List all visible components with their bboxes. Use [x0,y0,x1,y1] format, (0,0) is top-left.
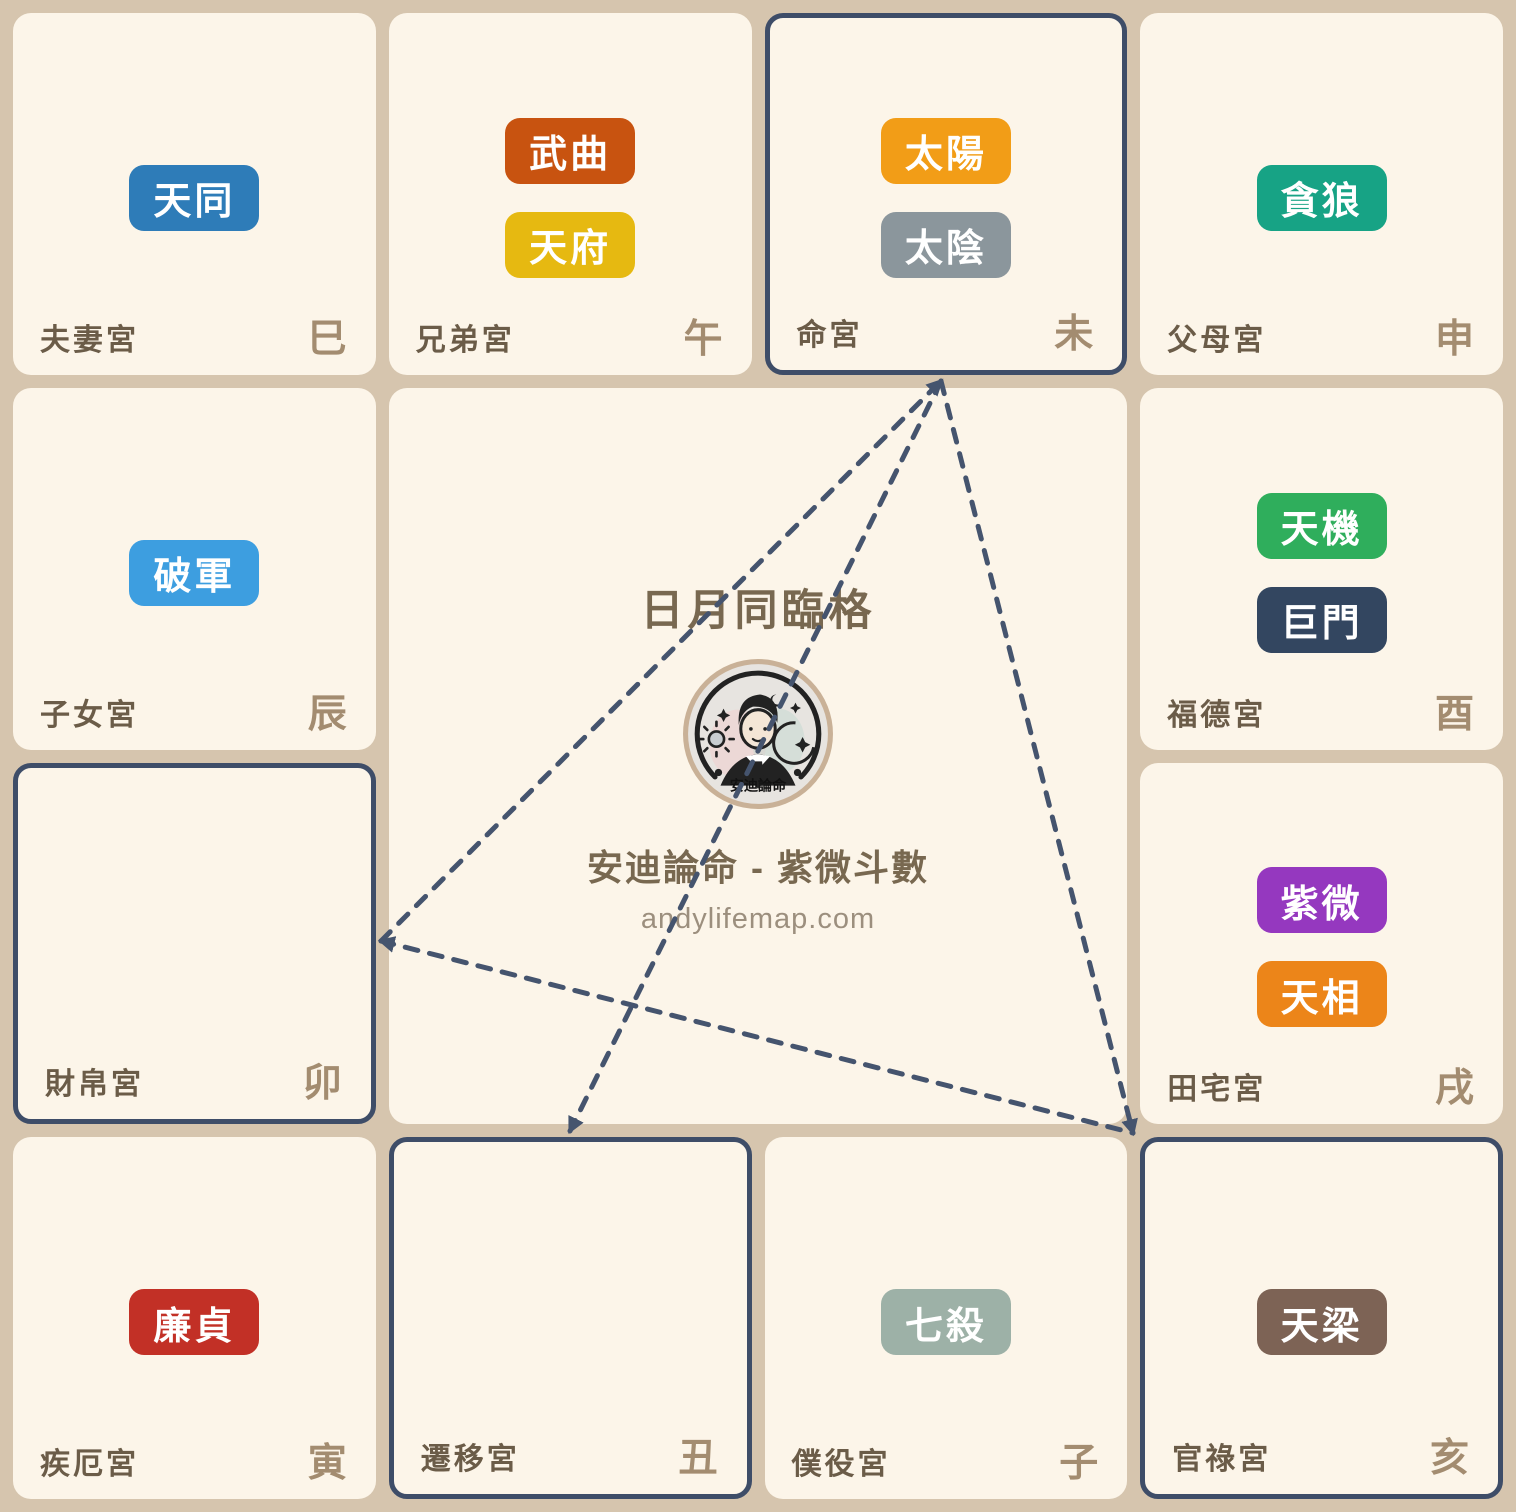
logo-text: 安迪論命 [730,778,788,795]
palace-cell-qianyi: 遷移宮 丑 [389,1137,752,1499]
star-badge: 紫微 [1257,867,1387,933]
palace-cell-xiongdi: 武曲天府 兄弟宮 午 [389,13,752,375]
branch-label: 丑 [678,1439,717,1478]
palace-cell-jie: 廉貞 疾厄宮 寅 [13,1137,376,1499]
palace-meta: 夫妻宮 巳 [40,315,347,359]
branch-label: 酉 [1435,695,1474,734]
chart-center-panel: 日月同臨格 [389,388,1128,1125]
sun-icon [699,722,733,756]
star-badge: 天同 [129,165,259,231]
branch-label: 寅 [308,1444,347,1483]
star-badge: 太陰 [881,212,1011,278]
branch-label: 午 [683,320,722,359]
branch-label: 巳 [308,320,347,359]
palace-name: 官祿宮 [1172,1434,1271,1478]
center-content: 日月同臨格 [389,388,1128,1125]
star-badge: 太陽 [881,118,1011,184]
palace-meta: 遷移宮 丑 [421,1434,718,1478]
palace-meta: 田宅宮 戌 [1167,1064,1474,1108]
palace-cell-fuqi: 天同 夫妻宮 巳 [13,13,376,375]
palace-cell-ming: 太陽太陰 命宮 未 [765,13,1128,375]
palace-name: 兄弟宮 [416,315,515,359]
branch-label: 辰 [308,695,347,734]
palace-cell-zinv: 破軍 子女宮 辰 [13,388,376,750]
palace-name: 福德宮 [1167,690,1266,734]
palace-name: 僕役宮 [792,1439,891,1483]
branch-label: 戌 [1435,1069,1474,1108]
branch-label: 申 [1435,320,1474,359]
star-badge: 天梁 [1257,1289,1387,1355]
palace-cell-tianzhai: 紫微天相 田宅宮 戌 [1140,763,1503,1125]
star-badge: 武曲 [505,118,635,184]
star-badge: 天府 [505,212,635,278]
palace-meta: 父母宮 申 [1167,315,1474,359]
branch-label: 亥 [1430,1439,1469,1478]
palace-meta: 命宮 未 [797,310,1094,354]
palace-meta: 僕役宮 子 [792,1439,1099,1483]
palace-name: 夫妻宮 [40,315,139,359]
star-badge: 天相 [1257,961,1387,1027]
palace-cell-fude: 天機巨門 福德宮 酉 [1140,388,1503,750]
palace-name: 田宅宮 [1167,1064,1266,1108]
logo-avatar: 安迪論命 [682,658,834,815]
brand-text: 安迪論命 - 紫微斗數 [587,839,929,891]
palace-meta: 子女宮 辰 [40,690,347,734]
palace-cell-caibo: 財帛宮 卯 [13,763,376,1125]
palace-meta: 財帛宮 卯 [45,1059,342,1103]
star-badge: 巨門 [1257,587,1387,653]
branch-label: 未 [1054,315,1093,354]
branch-label: 卯 [303,1064,342,1103]
palace-cell-puyi: 七殺 僕役宮 子 [765,1137,1128,1499]
palace-name: 命宮 [797,310,863,354]
palace-name: 父母宮 [1167,315,1266,359]
palace-cell-fumu: 貪狼 父母宮 申 [1140,13,1503,375]
palace-meta: 兄弟宮 午 [416,315,723,359]
star-badge: 破軍 [129,540,259,606]
palace-name: 財帛宮 [45,1059,144,1103]
star-badge: 七殺 [881,1289,1011,1355]
star-badge: 貪狼 [1257,165,1387,231]
palace-meta: 疾厄宮 寅 [40,1439,347,1483]
branch-label: 子 [1059,1444,1098,1483]
chart-pattern-title: 日月同臨格 [641,576,876,638]
palace-meta: 官祿宮 亥 [1172,1434,1469,1478]
star-badge: 天機 [1257,493,1387,559]
palace-name: 子女宮 [40,690,139,734]
star-badge: 廉貞 [129,1289,259,1355]
palace-cell-guanlu: 天梁 官祿宮 亥 [1140,1137,1503,1499]
ziwei-chart-board: 天同 夫妻宮 巳 武曲天府 兄弟宮 午 太陽太陰 命宮 未 貪狼 父母宮 申 破… [0,0,1516,1512]
palace-meta: 福德宮 酉 [1167,690,1474,734]
website-url: andylifemap.com [641,903,875,936]
palace-name: 疾厄宮 [40,1439,139,1483]
palace-name: 遷移宮 [421,1434,520,1478]
